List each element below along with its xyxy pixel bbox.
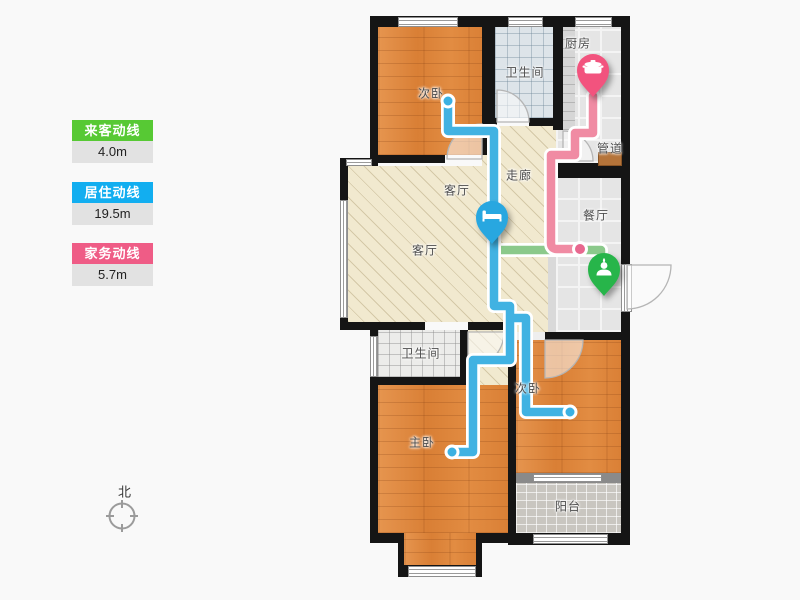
floorplan: 次卧 卫生间 厨房 管道 走廊 客厅 客厅 餐厅 卫生间 次卧 主卧 阳台 北 … — [0, 0, 800, 600]
floor-dining — [556, 178, 621, 332]
room-label-duct: 管道 — [597, 140, 623, 157]
room-label-hallway: 走廊 — [506, 167, 532, 184]
wall — [370, 377, 468, 385]
wall — [487, 27, 495, 130]
room-label-balcony: 阳台 — [555, 498, 581, 515]
door-threshold — [505, 332, 545, 340]
room-label-kitchen: 厨房 — [565, 35, 591, 52]
legend-item-resident: 居住动线 19.5m — [72, 182, 153, 225]
room-label-bedroom-right: 次卧 — [515, 380, 541, 397]
floor-master-bay — [404, 533, 476, 566]
room-label-dining: 餐厅 — [583, 207, 609, 224]
wall — [370, 533, 404, 543]
floor-bedroom-right — [516, 340, 621, 473]
entrance-door-leaf[interactable] — [621, 264, 632, 312]
wall — [487, 118, 497, 126]
window — [508, 17, 543, 27]
resident-line-length: 19.5m — [72, 203, 153, 225]
compass — [106, 500, 138, 532]
wall — [476, 543, 482, 567]
resident-line-label[interactable]: 居住动线 — [72, 182, 153, 203]
housework-line-length: 5.7m — [72, 264, 153, 286]
visitor-line-label[interactable]: 来客动线 — [72, 120, 153, 141]
window — [575, 17, 612, 27]
window — [398, 17, 458, 27]
entrance-door-arc — [627, 265, 671, 309]
dining-divider-wall — [548, 178, 556, 332]
room-label-bathroom-top: 卫生间 — [505, 64, 544, 81]
floor-hallway-lower — [468, 330, 508, 385]
window — [408, 566, 476, 577]
wall — [529, 118, 553, 126]
wall — [508, 340, 516, 480]
wall — [553, 27, 563, 130]
room-label-master-bedroom: 主卧 — [409, 434, 435, 451]
room-label-living-upper: 客厅 — [444, 182, 470, 199]
window — [533, 534, 608, 544]
legend-item-visitor: 来客动线 4.0m — [72, 120, 153, 163]
balcony-slider-window — [533, 474, 602, 482]
wall — [378, 155, 445, 163]
wall — [468, 322, 516, 330]
floor-hallway — [482, 126, 556, 332]
room-label-bedroom-top: 次卧 — [418, 85, 444, 102]
wall — [508, 480, 516, 533]
floor-master-bedroom — [378, 385, 508, 533]
housework-line-label[interactable]: 家务动线 — [72, 243, 153, 264]
window — [370, 336, 378, 377]
wall — [398, 543, 404, 567]
room-label-living: 客厅 — [412, 242, 438, 259]
visitor-line-length: 4.0m — [72, 141, 153, 163]
wall — [340, 322, 425, 330]
window — [346, 159, 372, 166]
window — [340, 200, 348, 318]
wall — [545, 332, 621, 340]
wall — [370, 27, 378, 158]
compass-north-label: 北 — [118, 482, 132, 501]
legend-item-housework: 家务动线 5.7m — [72, 243, 153, 286]
room-label-bathroom-mid: 卫生间 — [401, 345, 440, 362]
